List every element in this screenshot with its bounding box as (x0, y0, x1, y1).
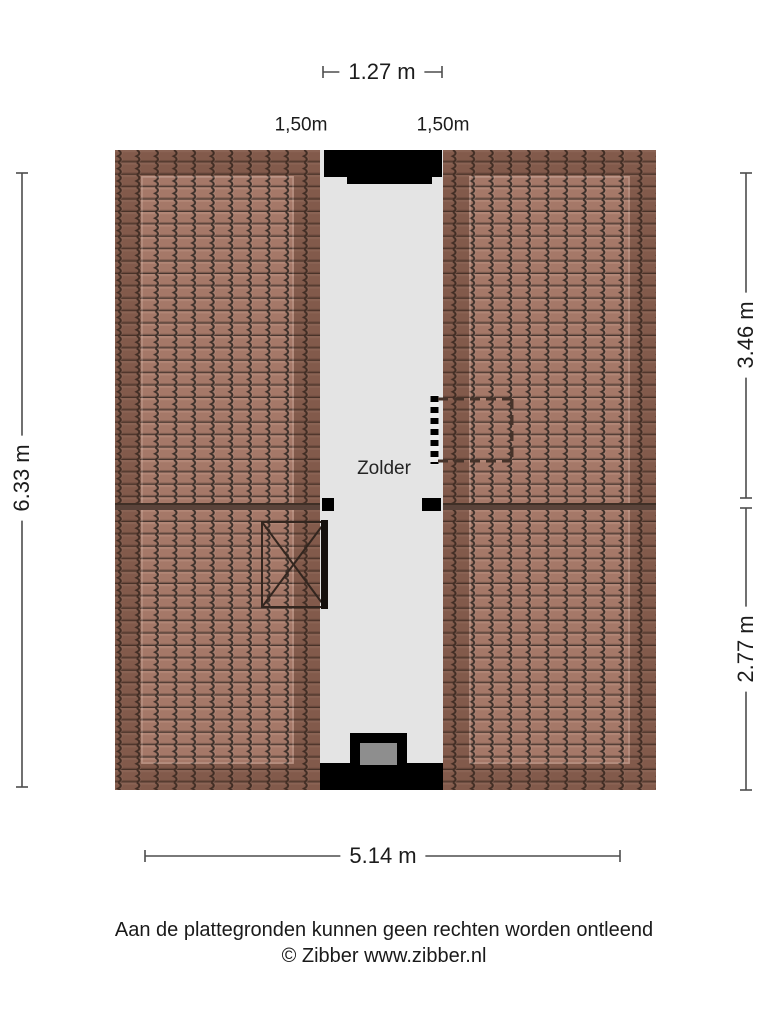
chimney (350, 733, 407, 765)
floorplan-page: 1.27 m 1,50m 1,50m 6.33 m 3.46 m 2.77 m … (0, 0, 768, 1024)
bottom-wall (320, 763, 443, 790)
roof-slope-left (115, 150, 320, 790)
disclaimer-text: Aan de plattegronden kunnen geen rechten… (0, 917, 768, 943)
headroom-left-label: 1,50m (275, 115, 328, 138)
copyright-text: © Zibber www.zibber.nl (0, 943, 768, 969)
dimension-left-label: 6.33 m (9, 435, 35, 520)
dimension-right-upper-label: 3.46 m (733, 292, 759, 377)
wall-stub-left (322, 498, 334, 511)
dimension-top-label: 1.27 m (339, 59, 424, 85)
headroom-right-label: 1,50m (417, 115, 470, 138)
roof-slope-right (443, 150, 656, 790)
dimension-right-lower-label: 2.77 m (733, 606, 759, 691)
room-label: Zolder (357, 458, 411, 480)
wall-stub-right (422, 498, 441, 511)
floorplan-graphic (0, 0, 768, 1024)
dimension-bottom-label: 5.14 m (340, 843, 425, 869)
